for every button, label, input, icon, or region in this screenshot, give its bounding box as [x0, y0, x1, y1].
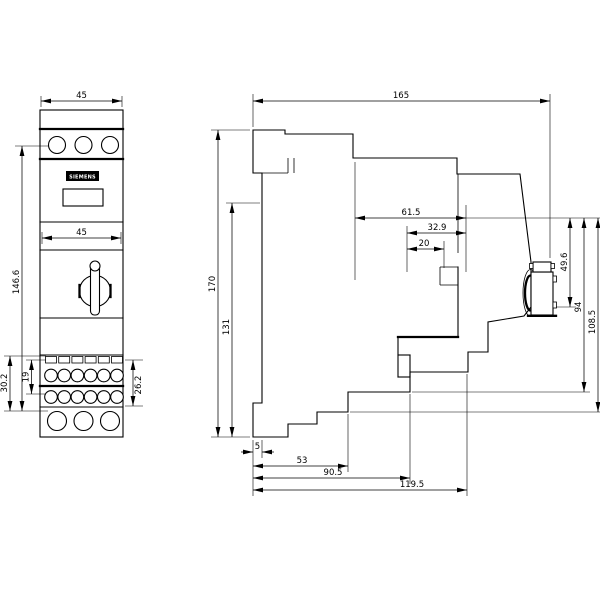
- dim-side-overall-height: 170: [208, 130, 250, 437]
- dim-label: 119.5: [400, 480, 424, 490]
- dim-label: 165: [393, 91, 409, 101]
- dim-front-mid-height: 94: [412, 218, 590, 392]
- knob-lever-tip: [90, 261, 100, 271]
- dim-front-overall-height: 146.6: [4, 146, 48, 411]
- dim-knob-zone-depth: 32.9: [407, 223, 466, 272]
- dim-front-lower-height: 108.5: [350, 218, 600, 412]
- dim-label: 5: [255, 442, 260, 452]
- rotary-knob: [80, 261, 111, 315]
- dim-front-overall-width: 45: [41, 91, 122, 107]
- dim-label: 53: [297, 456, 308, 466]
- brand-logo-text: SIEMENS: [69, 175, 96, 181]
- output-terminal-circles: [48, 412, 120, 431]
- knob-body: [531, 272, 553, 315]
- control-terminal-row-1: [45, 369, 124, 382]
- dim-terminal-zone-right: 26.2: [125, 360, 144, 406]
- dim-base-step-1: 53: [253, 414, 348, 472]
- dim-knob-lower-height: 49.6: [556, 218, 576, 307]
- front-view: SIEMENS 45: [0, 91, 144, 437]
- terminal-circle: [49, 137, 66, 154]
- dim-label: 170: [208, 276, 218, 292]
- side-internal-lines: [262, 158, 458, 377]
- dim-label: 30.2: [0, 374, 10, 393]
- dim-label: 108.5: [588, 310, 598, 334]
- terminal-screw-slots: [46, 357, 123, 364]
- dim-label: 20: [419, 239, 430, 249]
- knob-cap: [533, 262, 551, 272]
- dim-base-step-2: 90.5: [253, 394, 410, 484]
- dim-side-rail-zone-height: 131: [222, 203, 260, 437]
- dim-front-inner-width: 45: [42, 228, 121, 244]
- dim-label: 26.2: [134, 376, 144, 395]
- dim-label: 19: [22, 372, 32, 383]
- dim-label: 45: [76, 91, 87, 101]
- dim-label: 90.5: [324, 468, 343, 478]
- control-terminal-row-2: [45, 391, 124, 404]
- dim-terminal-zone-left: 30.2: [0, 356, 46, 411]
- dimension-drawing: SIEMENS 45: [0, 0, 600, 600]
- dim-label: 61.5: [402, 208, 421, 218]
- dim-label: 146.6: [12, 270, 22, 294]
- dim-knob-depth: 20: [407, 239, 444, 268]
- dim-label: 32.9: [428, 223, 447, 233]
- side-profile-outline: [253, 130, 531, 437]
- terminal-circle: [102, 137, 119, 154]
- dim-label: 45: [76, 228, 87, 238]
- dim-base-step-small: 5: [241, 440, 274, 496]
- side-view: 165 170 131 61.5 32.9: [208, 91, 600, 496]
- display-window: [63, 189, 103, 206]
- dim-label: 49.6: [560, 253, 570, 272]
- dim-terminal-row-spacing: 19: [22, 360, 47, 394]
- dim-label: 94: [574, 302, 584, 313]
- dim-label: 131: [222, 319, 232, 335]
- input-terminal-circles: [49, 137, 119, 154]
- terminal-circle: [75, 137, 92, 154]
- brand-label: SIEMENS: [66, 171, 99, 181]
- side-knob: [523, 262, 557, 317]
